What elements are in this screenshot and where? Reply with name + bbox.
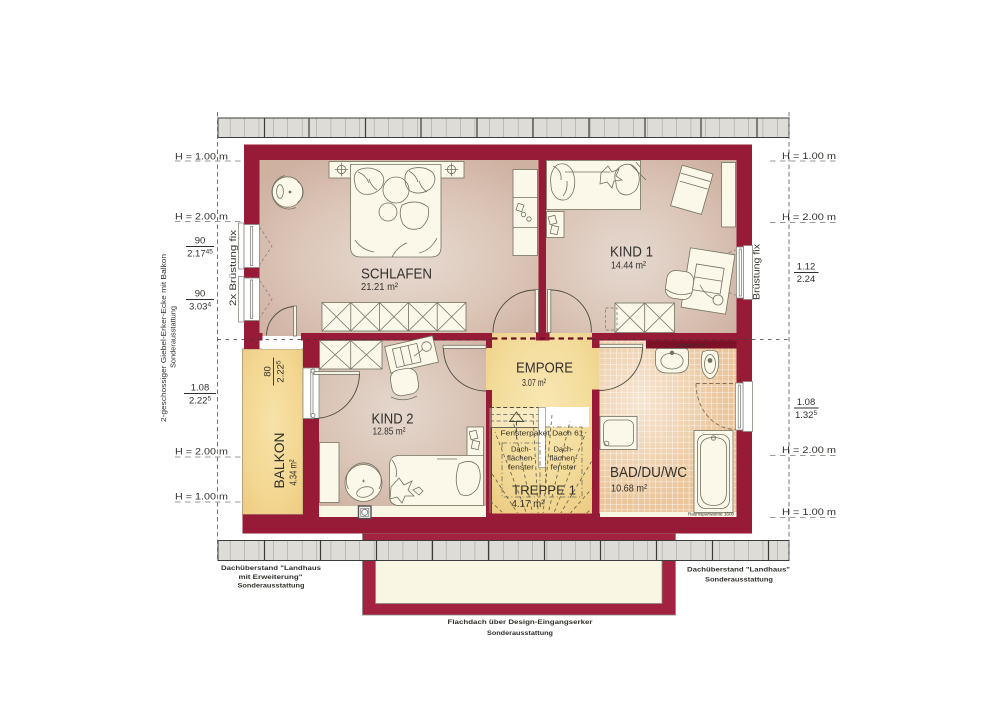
svg-text:90: 90 <box>195 289 206 300</box>
svg-text:Dachüberstand "Landhaus: Dachüberstand "Landhaus <box>221 565 322 572</box>
svg-text:Dach-: Dach- <box>511 445 531 454</box>
svg-text:H = 2.00 m: H = 2.00 m <box>175 447 228 457</box>
svg-text:fenster: fenster <box>551 463 578 472</box>
svg-text:flächen-: flächen- <box>507 454 535 463</box>
svg-text:4.34 m²: 4.34 m² <box>288 459 300 485</box>
svg-text:Dachüberstand "Landhaus": Dachüberstand "Landhaus" <box>687 567 790 574</box>
svg-text:Flachdach über Design-Eingangs: Flachdach über Design-Eingangserker <box>448 619 594 626</box>
svg-text:Abstellraum: Abstellraum <box>677 343 706 348</box>
svg-text:fenster: fenster <box>508 463 535 472</box>
svg-text:KIND 1: KIND 1 <box>610 244 653 261</box>
svg-text:Sonderausstattung: Sonderausstattung <box>705 576 773 583</box>
svg-text:mit Erweiterung": mit Erweiterung" <box>239 574 303 581</box>
svg-text:EMPORE: EMPORE <box>516 360 573 377</box>
svg-text:12.85 m²: 12.85 m² <box>373 426 406 438</box>
svg-text:90: 90 <box>195 236 206 247</box>
svg-text:H = 1.00 m: H = 1.00 m <box>175 151 228 161</box>
svg-text:Sonderausstattung: Sonderausstattung <box>487 630 553 637</box>
svg-text:BALKON: BALKON <box>271 433 287 489</box>
svg-text:BAD/DU/WC: BAD/DU/WC <box>610 465 687 481</box>
svg-text:21.21 m²: 21.21 m² <box>361 281 398 293</box>
svg-text:TREPPE 1: TREPPE 1 <box>512 483 576 498</box>
svg-text:3.07 m²: 3.07 m² <box>522 377 546 389</box>
svg-text:1.12: 1.12 <box>797 262 816 273</box>
svg-text:80: 80 <box>263 366 274 377</box>
svg-text:Dach-: Dach- <box>554 445 574 454</box>
svg-text:Sonderausstattung: Sonderausstattung <box>238 583 305 590</box>
svg-text:10.68 m²: 10.68 m² <box>611 483 647 495</box>
svg-text:Fensterpaket Dach 61: Fensterpaket Dach 61 <box>501 429 584 438</box>
svg-text:H = 1.00 m: H = 1.00 m <box>175 492 228 502</box>
svg-text:4.17 m²: 4.17 m² <box>512 499 546 510</box>
svg-text:H = 1.00 m: H = 1.00 m <box>782 151 836 161</box>
svg-text:2x Brüstung fix: 2x Brüstung fix <box>228 229 238 306</box>
svg-text:H = 1.00 m: H = 1.00 m <box>782 507 836 517</box>
svg-text:1.08: 1.08 <box>191 383 210 394</box>
svg-text:H = 2.00 m: H = 2.00 m <box>782 212 836 222</box>
svg-text:2-geschossiger Giebel-Erker-Ec: 2-geschossiger Giebel-Erker-Ecke mit Bal… <box>159 254 168 422</box>
svg-text:H = 2.00 m: H = 2.00 m <box>782 445 836 455</box>
svg-text:SCHLAFEN: SCHLAFEN <box>361 266 432 283</box>
svg-text:1.08: 1.08 <box>797 397 816 408</box>
svg-text:Sonderausstattung: Sonderausstattung <box>169 306 178 368</box>
svg-text:2.24: 2.24 <box>797 274 816 285</box>
svg-text:H = 2.00 m: H = 2.00 m <box>175 211 228 221</box>
svg-text:flächen-: flächen- <box>550 454 578 463</box>
svg-text:Raumsparwanne 1600: Raumsparwanne 1600 <box>688 511 735 516</box>
svg-text:14.44 m²: 14.44 m² <box>611 260 646 272</box>
svg-text:Brüstung fix: Brüstung fix <box>752 243 762 300</box>
